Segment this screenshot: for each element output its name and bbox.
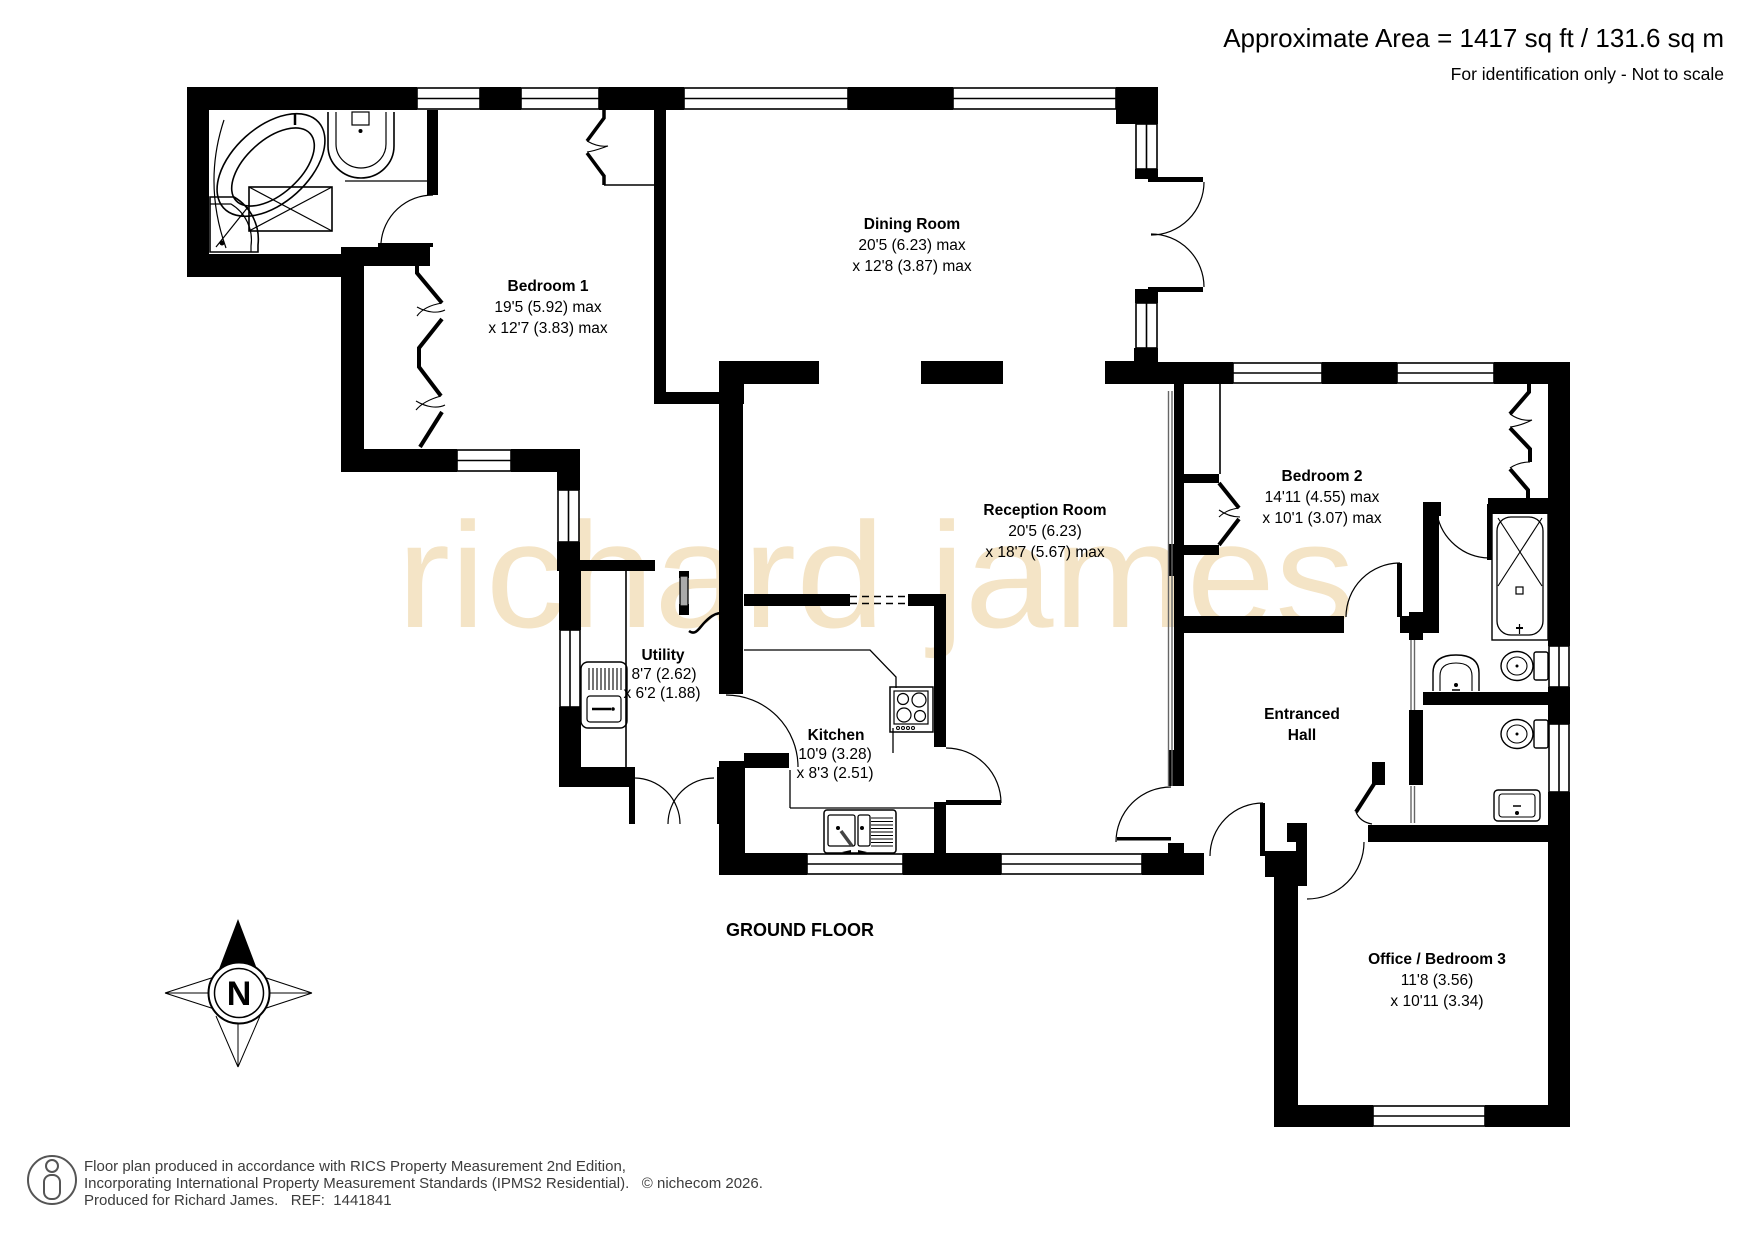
svg-text:Bedroom 2: Bedroom 2 <box>1282 468 1363 485</box>
svg-text:x 10'1 (3.07) max: x 10'1 (3.07) max <box>1262 510 1382 527</box>
svg-text:x 12'7 (3.83) max: x 12'7 (3.83) max <box>488 320 608 337</box>
svg-text:N: N <box>227 975 252 1013</box>
svg-text:Reception Room: Reception Room <box>983 502 1106 519</box>
svg-text:Approximate Area = 1417 sq ft: Approximate Area = 1417 sq ft / 131.6 sq… <box>1223 23 1724 53</box>
svg-text:Kitchen: Kitchen <box>808 727 865 744</box>
svg-text:10'9 (3.28): 10'9 (3.28) <box>798 746 872 763</box>
svg-text:Entranced: Entranced <box>1264 706 1340 723</box>
svg-text:richard james: richard james <box>397 491 1355 659</box>
svg-text:8'7 (2.62): 8'7 (2.62) <box>632 666 697 683</box>
svg-text:Incorporating International Pr: Incorporating International Property Mea… <box>84 1175 763 1192</box>
svg-text:x 8'3 (2.51): x 8'3 (2.51) <box>796 765 873 782</box>
svg-text:11'8 (3.56): 11'8 (3.56) <box>1401 972 1473 989</box>
svg-text:Office / Bedroom 3: Office / Bedroom 3 <box>1368 951 1506 968</box>
svg-text:x 10'11 (3.34): x 10'11 (3.34) <box>1390 993 1483 1010</box>
svg-text:20'5 (6.23): 20'5 (6.23) <box>1008 523 1082 540</box>
svg-text:GROUND FLOOR: GROUND FLOOR <box>726 920 874 940</box>
svg-text:x 18'7 (5.67) max: x 18'7 (5.67) max <box>985 544 1105 561</box>
svg-text:19'5 (5.92) max: 19'5 (5.92) max <box>494 299 601 316</box>
svg-text:Floor plan produced in accorda: Floor plan produced in accordance with R… <box>84 1158 626 1175</box>
svg-text:Hall: Hall <box>1288 727 1316 744</box>
svg-text:20'5 (6.23) max: 20'5 (6.23) max <box>858 237 965 254</box>
svg-text:Dining Room: Dining Room <box>864 216 960 233</box>
svg-text:14'11 (4.55) max: 14'11 (4.55) max <box>1265 489 1380 506</box>
svg-text:x 12'8 (3.87) max: x 12'8 (3.87) max <box>852 258 972 275</box>
svg-text:Utility: Utility <box>641 647 684 664</box>
svg-text:Produced for Richard James.: Produced for Richard James. REF: 1441841 <box>84 1192 392 1209</box>
svg-text:x 6'2 (1.88): x 6'2 (1.88) <box>623 685 700 702</box>
svg-text:For identification only - Not: For identification only - Not to scale <box>1451 64 1724 84</box>
svg-text:Bedroom 1: Bedroom 1 <box>508 278 589 295</box>
